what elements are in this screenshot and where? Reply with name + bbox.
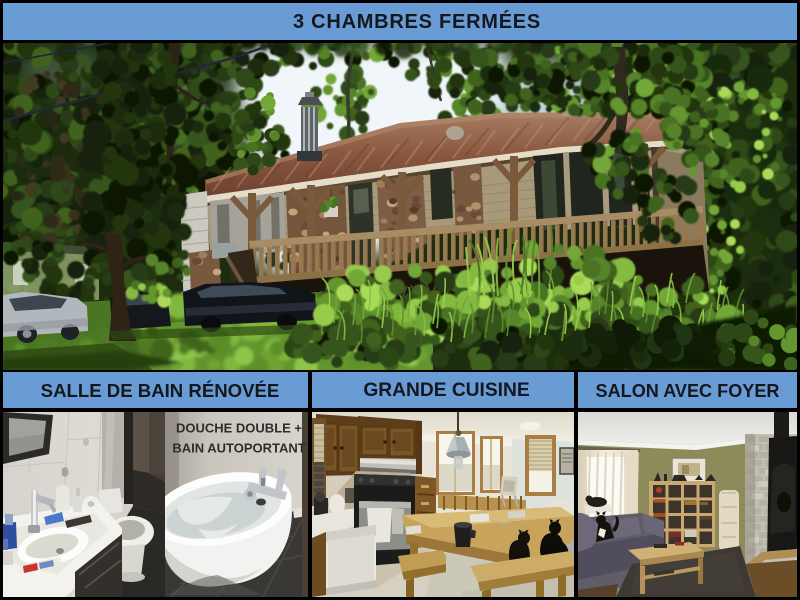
svg-text:BAIN AUTOPORTANT: BAIN AUTOPORTANT [172, 441, 305, 456]
svg-text:DOUCHE DOUBLE +: DOUCHE DOUBLE + [176, 421, 302, 436]
